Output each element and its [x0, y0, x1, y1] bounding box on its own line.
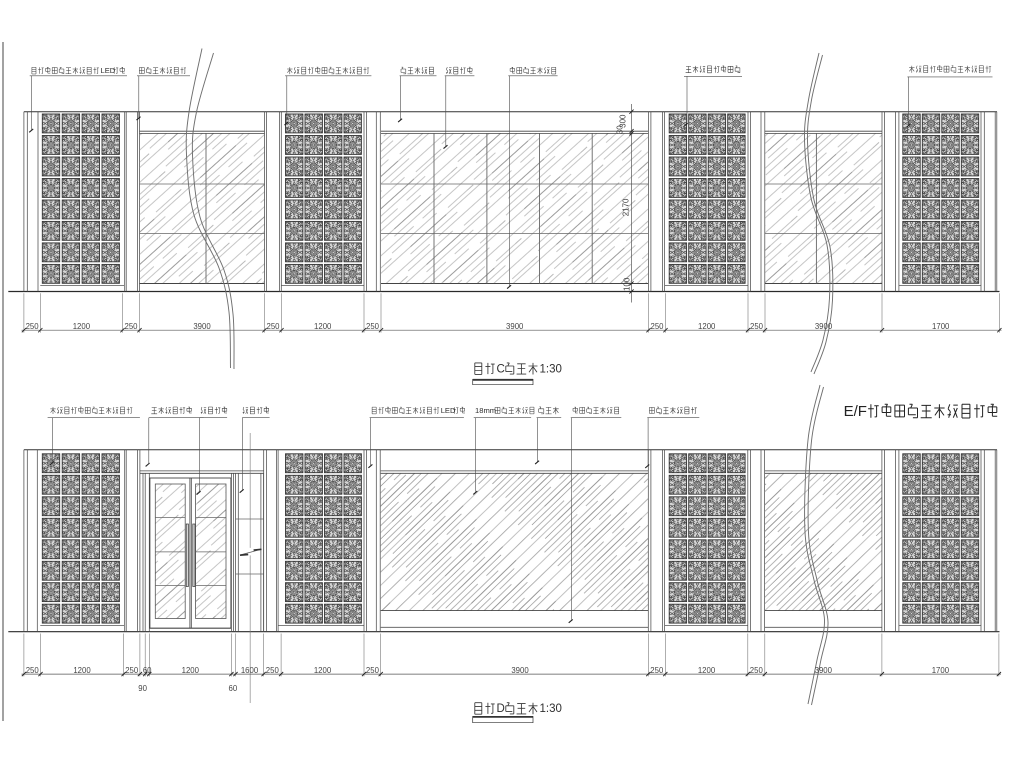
svg-text:3900: 3900 [815, 322, 833, 331]
svg-text:1700: 1700 [932, 666, 950, 675]
svg-text:3900: 3900 [815, 666, 833, 675]
svg-text:30: 30 [615, 125, 624, 134]
svg-text:250: 250 [750, 322, 764, 331]
svg-text:LED: LED [441, 406, 456, 415]
svg-text:1200: 1200 [73, 666, 91, 675]
svg-text:18mm: 18mm [475, 406, 496, 415]
svg-text:3900: 3900 [506, 322, 524, 331]
svg-text:1600: 1600 [241, 666, 259, 675]
svg-text:1:30: 1:30 [540, 703, 562, 715]
svg-text:250: 250 [366, 322, 380, 331]
svg-text:250: 250 [750, 666, 764, 675]
svg-text:3900: 3900 [193, 322, 211, 331]
svg-text:1700: 1700 [932, 322, 950, 331]
svg-text:D: D [497, 703, 505, 715]
svg-text:2170: 2170 [621, 198, 630, 216]
svg-text:3900: 3900 [511, 666, 529, 675]
svg-text:1200: 1200 [314, 322, 332, 331]
svg-text:250: 250 [125, 666, 139, 675]
svg-text:1200: 1200 [182, 666, 200, 675]
svg-text:250: 250 [124, 322, 138, 331]
svg-text:250: 250 [650, 322, 664, 331]
svg-text:1200: 1200 [314, 666, 332, 675]
svg-text:250: 250 [266, 666, 280, 675]
svg-text:1200: 1200 [698, 666, 716, 675]
svg-text:250: 250 [266, 322, 280, 331]
svg-text:LED: LED [101, 66, 116, 75]
svg-text:250: 250 [650, 666, 664, 675]
svg-text:1200: 1200 [73, 322, 91, 331]
svg-text:250: 250 [366, 666, 380, 675]
svg-text:C: C [497, 363, 505, 375]
svg-text:60: 60 [229, 684, 238, 693]
svg-text:1200: 1200 [698, 322, 716, 331]
svg-text:E/F: E/F [844, 403, 867, 420]
svg-text:100: 100 [623, 277, 632, 291]
svg-text:250: 250 [26, 666, 40, 675]
svg-text:1:30: 1:30 [540, 363, 562, 375]
svg-text:250: 250 [26, 322, 40, 331]
svg-text:60: 60 [143, 666, 152, 675]
svg-text:90: 90 [138, 684, 147, 693]
